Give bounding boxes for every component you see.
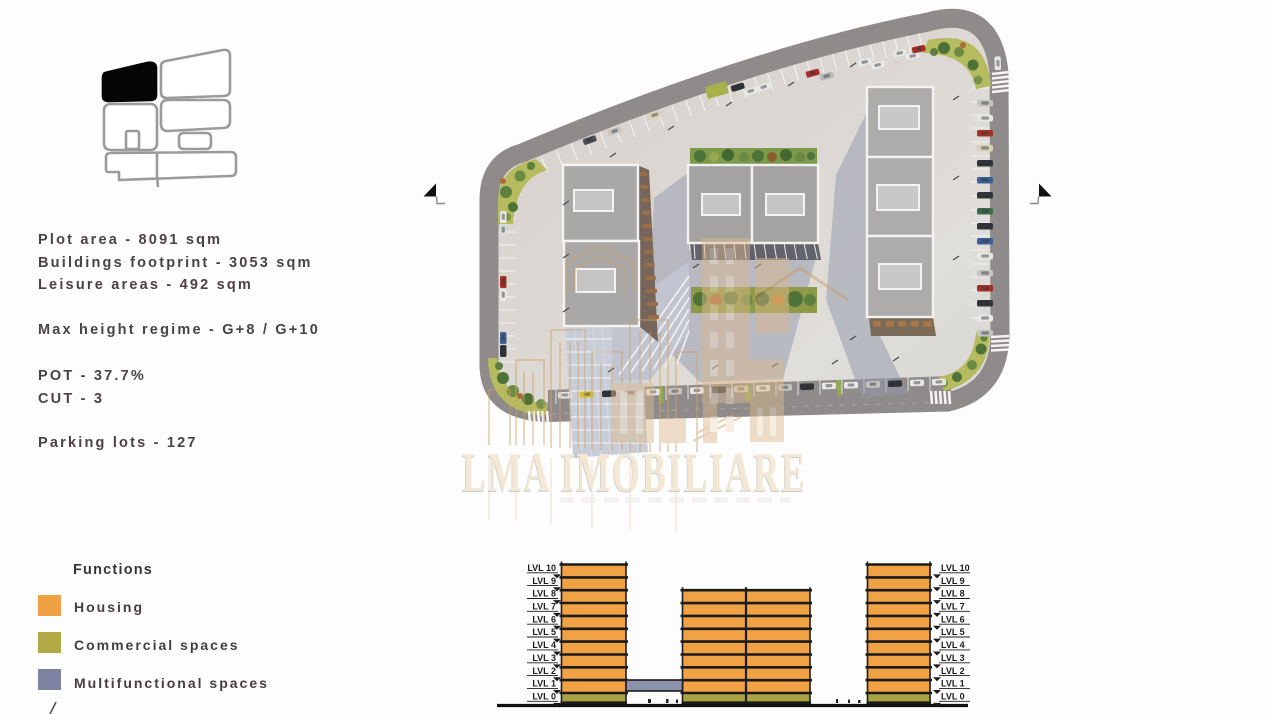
svg-text:LVL 10: LVL 10 (941, 563, 970, 573)
svg-text:LVL 9: LVL 9 (941, 576, 965, 586)
svg-text:LVL 8: LVL 8 (532, 589, 556, 599)
svg-text:LVL 0: LVL 0 (532, 692, 556, 702)
svg-text:LVL 7: LVL 7 (532, 602, 556, 612)
svg-text:LVL 3: LVL 3 (532, 653, 556, 663)
svg-text:LVL 4: LVL 4 (941, 640, 965, 650)
svg-text:LVL 3: LVL 3 (941, 653, 965, 663)
svg-text:LVL 8: LVL 8 (941, 589, 965, 599)
svg-text:LVL 6: LVL 6 (532, 614, 556, 624)
svg-text:LVL 2: LVL 2 (532, 666, 556, 676)
svg-text:LVL 6: LVL 6 (941, 614, 965, 624)
svg-text:LVL 5: LVL 5 (941, 627, 965, 637)
svg-text:LVL 10: LVL 10 (527, 563, 556, 573)
svg-text:LVL 5: LVL 5 (532, 627, 556, 637)
svg-text:LVL 4: LVL 4 (532, 640, 556, 650)
svg-text:LVL 1: LVL 1 (532, 679, 556, 689)
svg-text:LVL 7: LVL 7 (941, 602, 965, 612)
svg-text:LVL 0: LVL 0 (941, 692, 965, 702)
svg-text:LVL 9: LVL 9 (532, 576, 556, 586)
svg-text:LVL 1: LVL 1 (941, 679, 965, 689)
svg-text:LVL 2: LVL 2 (941, 666, 965, 676)
